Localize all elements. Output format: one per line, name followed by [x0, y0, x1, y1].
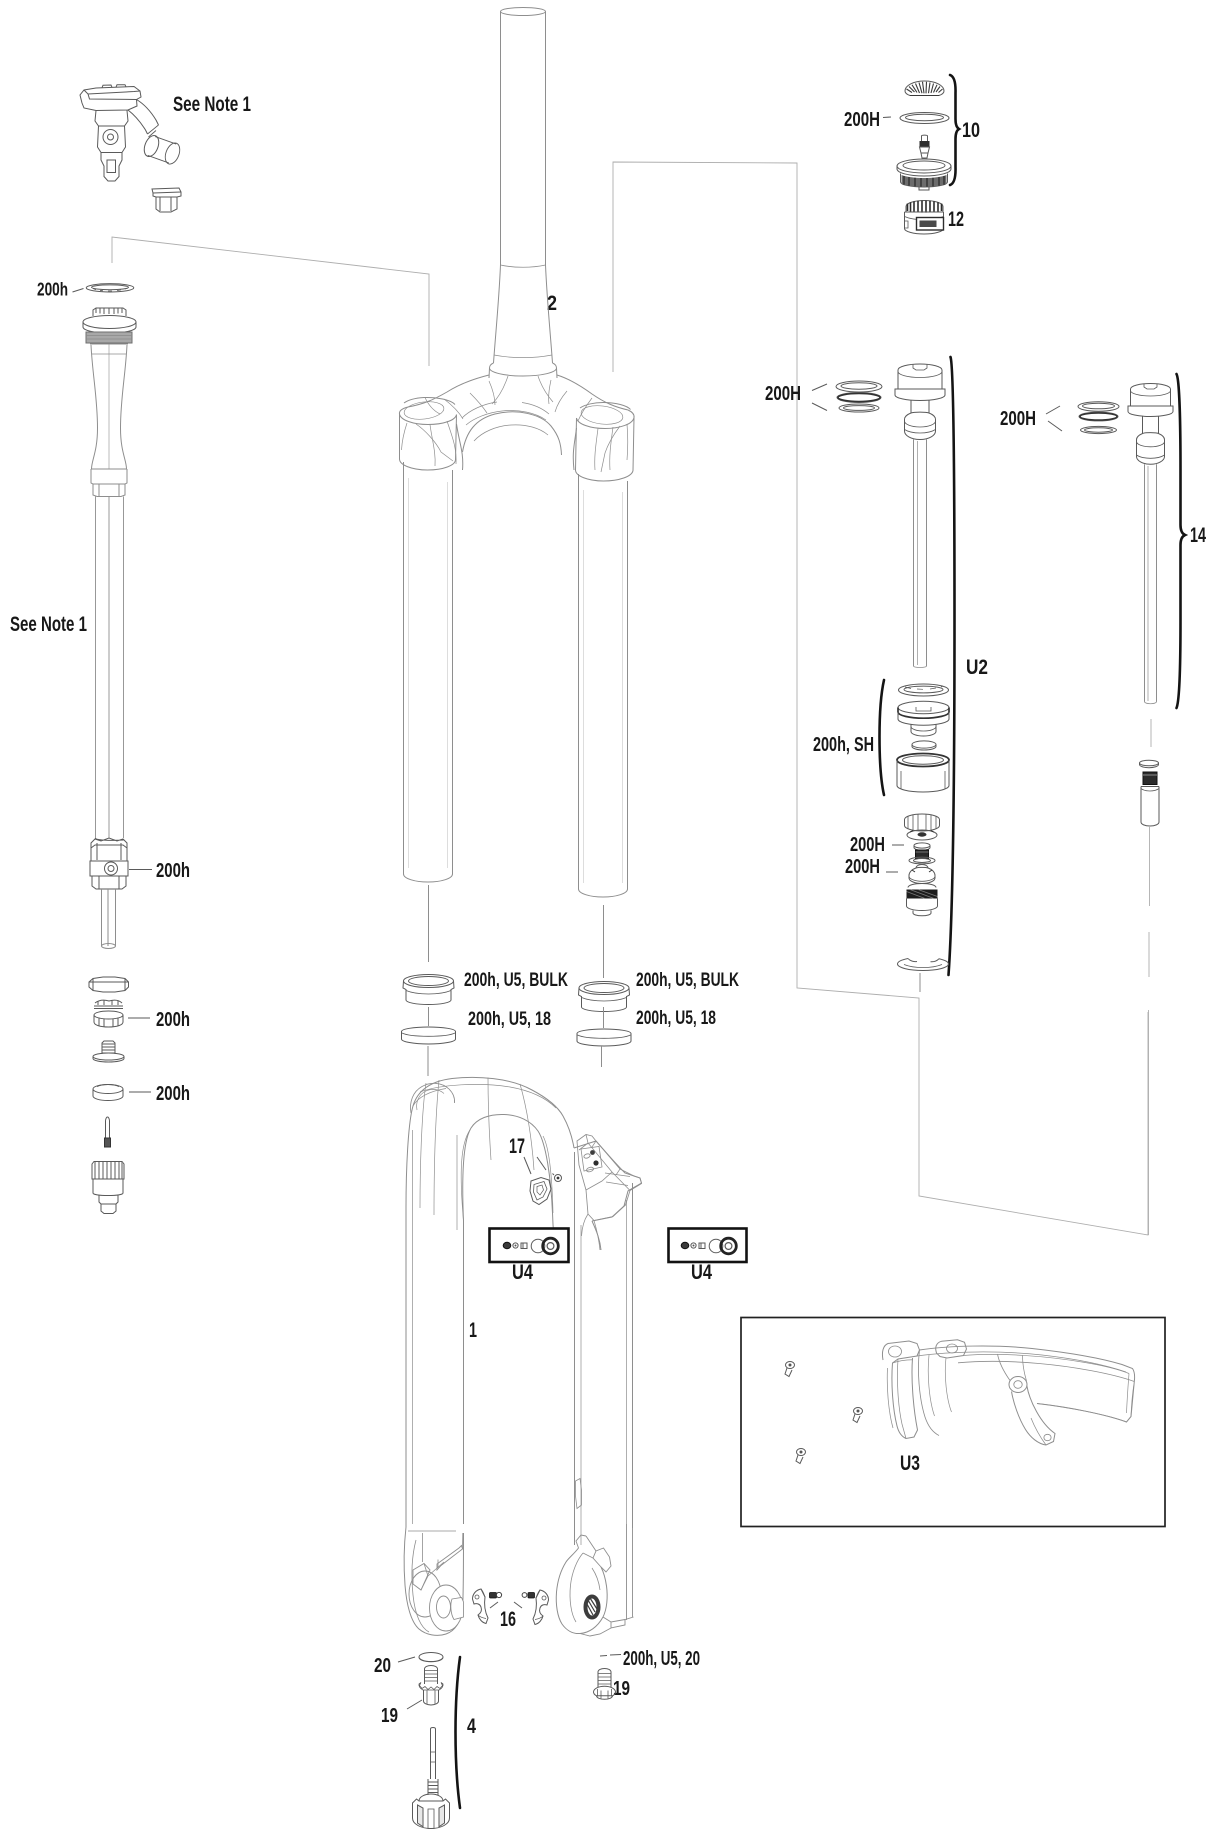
svg-text:U4: U4	[691, 1261, 712, 1284]
svg-text:16: 16	[500, 1608, 516, 1631]
svg-text:200h: 200h	[156, 1009, 190, 1031]
svg-text:U2: U2	[966, 656, 988, 679]
svg-text:14: 14	[1190, 524, 1206, 547]
svg-text:200h, U5, BULK: 200h, U5, BULK	[636, 970, 739, 991]
svg-text:200h, U5, 20: 200h, U5, 20	[623, 1648, 700, 1670]
svg-text:200H: 200H	[765, 383, 801, 405]
svg-text:200h, U5, BULK: 200h, U5, BULK	[464, 970, 568, 991]
svg-text:200h, U5, 18: 200h, U5, 18	[468, 1009, 551, 1030]
svg-text:See Note 1: See Note 1	[173, 93, 251, 116]
svg-text:1: 1	[469, 1319, 477, 1342]
svg-text:200H: 200H	[850, 834, 885, 856]
svg-text:200H: 200H	[844, 109, 880, 131]
svg-text:20: 20	[374, 1655, 391, 1677]
svg-text:U3: U3	[900, 1452, 920, 1475]
svg-text:19: 19	[381, 1705, 398, 1727]
svg-text:200H: 200H	[1000, 408, 1036, 430]
svg-text:200h: 200h	[156, 1083, 190, 1105]
svg-text:200h, SH: 200h, SH	[813, 734, 874, 756]
svg-text:200h: 200h	[37, 279, 68, 300]
svg-text:U4: U4	[512, 1261, 533, 1284]
svg-text:19: 19	[613, 1678, 630, 1700]
svg-text:10: 10	[962, 119, 980, 142]
svg-text:17: 17	[509, 1135, 525, 1158]
svg-text:200h: 200h	[156, 860, 190, 882]
svg-text:200h, U5, 18: 200h, U5, 18	[636, 1008, 716, 1029]
svg-text:200H: 200H	[845, 856, 880, 878]
svg-text:See Note 1: See Note 1	[10, 613, 87, 636]
svg-text:12: 12	[948, 208, 964, 231]
svg-text:4: 4	[467, 1715, 476, 1738]
